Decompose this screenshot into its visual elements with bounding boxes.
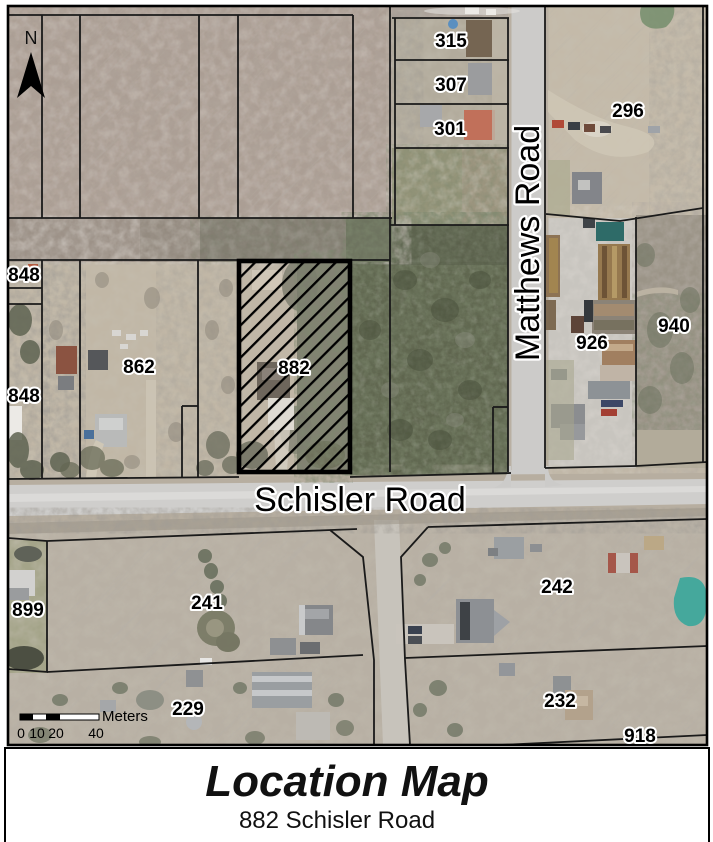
svg-text:Schisler Road: Schisler Road [254, 481, 466, 519]
svg-text:Meters: Meters [102, 708, 148, 725]
svg-text:315: 315 [435, 31, 467, 52]
svg-text:241: 241 [191, 593, 223, 614]
svg-text:301: 301 [434, 119, 466, 140]
svg-text:882: 882 [278, 358, 310, 379]
svg-text:848: 848 [8, 386, 40, 407]
svg-text:848: 848 [8, 265, 40, 286]
svg-text:40: 40 [88, 725, 104, 741]
svg-text:882 Schisler Road: 882 Schisler Road [239, 807, 435, 834]
svg-text:307: 307 [435, 75, 467, 96]
svg-text:229: 229 [172, 699, 204, 720]
svg-text:0: 0 [17, 725, 25, 741]
svg-text:940: 940 [658, 316, 690, 337]
svg-text:926: 926 [576, 333, 608, 354]
svg-text:10: 10 [29, 725, 45, 741]
svg-text:Matthews Road: Matthews Road [509, 125, 547, 361]
svg-text:242: 242 [541, 577, 573, 598]
svg-text:Location Map: Location Map [205, 757, 489, 806]
svg-text:296: 296 [612, 101, 644, 122]
svg-text:N: N [25, 28, 38, 48]
svg-text:862: 862 [123, 357, 155, 378]
svg-text:232: 232 [544, 691, 576, 712]
svg-text:20: 20 [48, 725, 64, 741]
svg-text:918: 918 [624, 726, 656, 747]
svg-text:899: 899 [12, 600, 44, 621]
